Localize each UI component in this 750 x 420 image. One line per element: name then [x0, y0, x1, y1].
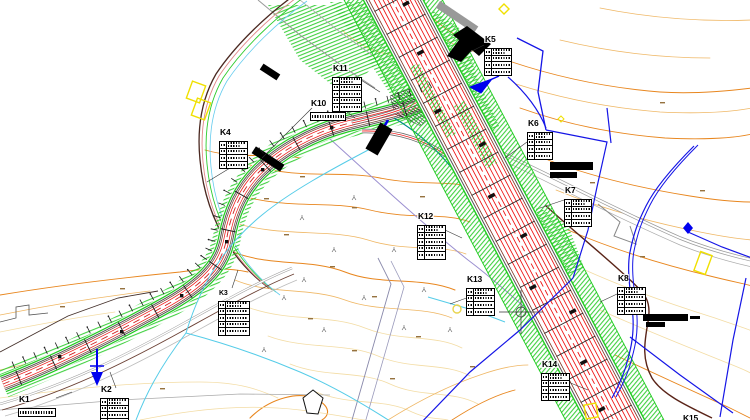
callout-K13-label: K13	[466, 275, 483, 283]
callout-K7-label: K7	[564, 186, 576, 194]
callout-K12-table	[417, 225, 446, 260]
callout-K4-label: K4	[219, 128, 231, 136]
callout-K13-table	[466, 288, 495, 316]
callout-K14: K14	[541, 354, 570, 401]
callout-K11-label: K11	[332, 64, 349, 72]
callout-K3-table	[218, 301, 250, 336]
callout-K1-label: K1	[18, 395, 30, 403]
callout-K5-table	[484, 48, 512, 76]
callout-K5-label: K5	[484, 35, 496, 43]
callout-K4: K4	[219, 122, 248, 169]
callout-K12: K12	[417, 206, 446, 260]
callout-K7-table	[564, 199, 592, 227]
callout-K14-label: K14	[541, 360, 558, 368]
callout-K3: K3	[218, 282, 250, 336]
yellow-diamond-icon	[499, 4, 509, 14]
callout-K6: K6	[527, 113, 553, 160]
callout-K10-label: K10	[310, 99, 327, 107]
blue-diamond-icon	[683, 222, 693, 234]
callout-K10-table	[310, 112, 346, 121]
callout-K15-label: K15	[682, 414, 699, 420]
plan-drawing	[0, 0, 750, 420]
callout-K15: K15	[682, 408, 699, 420]
callout-K2-label: K2	[100, 385, 112, 393]
callout-K5: K5	[484, 29, 512, 76]
road-design-plan: K1K2K3K4K5K6K7K8K10K11K12K13K14K15	[0, 0, 750, 420]
callout-K14-table	[541, 373, 570, 401]
callout-K4-table	[219, 141, 248, 169]
callout-K13: K13	[466, 269, 495, 316]
callout-K6-table	[527, 132, 553, 160]
callout-K2: K2	[100, 379, 129, 420]
callout-K6-label: K6	[527, 119, 539, 127]
callout-K3-label: K3	[218, 290, 229, 298]
callout-K7: K7	[564, 180, 592, 227]
callout-K8-label: K8	[617, 274, 629, 282]
callout-K1-table	[18, 408, 56, 417]
callout-K12-label: K12	[417, 212, 434, 220]
callout-K11-table	[332, 77, 362, 112]
callout-K2-table	[100, 398, 129, 420]
callout-K11: K11	[332, 58, 362, 112]
callout-K8: K8	[617, 268, 646, 315]
callout-K1: K1	[18, 389, 56, 417]
callout-K8-table	[617, 287, 646, 315]
